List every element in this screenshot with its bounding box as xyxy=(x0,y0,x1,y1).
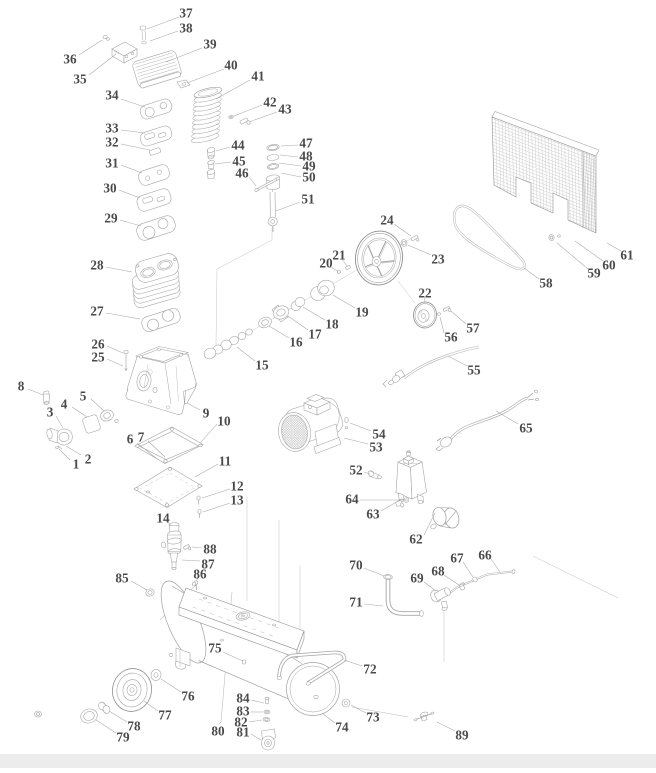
svg-text:3: 3 xyxy=(47,405,54,420)
svg-text:15: 15 xyxy=(255,358,269,373)
svg-text:13: 13 xyxy=(230,493,244,508)
svg-text:19: 19 xyxy=(355,305,369,320)
svg-text:67: 67 xyxy=(450,551,464,566)
svg-text:80: 80 xyxy=(211,724,225,739)
svg-text:38: 38 xyxy=(179,21,193,36)
svg-text:52: 52 xyxy=(349,463,363,478)
svg-text:5: 5 xyxy=(80,389,87,404)
svg-text:4: 4 xyxy=(61,397,68,412)
svg-text:31: 31 xyxy=(105,156,118,171)
svg-text:40: 40 xyxy=(224,58,238,73)
svg-text:75: 75 xyxy=(208,641,222,656)
svg-text:62: 62 xyxy=(409,532,423,547)
svg-text:46: 46 xyxy=(235,166,249,181)
svg-text:30: 30 xyxy=(103,181,117,196)
svg-text:76: 76 xyxy=(181,689,195,704)
svg-text:88: 88 xyxy=(203,542,217,557)
svg-text:71: 71 xyxy=(349,595,362,610)
svg-text:2: 2 xyxy=(85,452,92,467)
svg-text:56: 56 xyxy=(444,330,458,345)
svg-text:33: 33 xyxy=(105,121,119,136)
svg-text:55: 55 xyxy=(467,363,481,378)
svg-text:81: 81 xyxy=(236,725,249,740)
svg-text:66: 66 xyxy=(478,548,492,563)
svg-text:77: 77 xyxy=(158,708,172,723)
svg-text:59: 59 xyxy=(587,266,601,281)
svg-text:8: 8 xyxy=(18,379,25,394)
svg-text:28: 28 xyxy=(90,258,104,273)
svg-text:23: 23 xyxy=(431,252,445,267)
svg-text:51: 51 xyxy=(301,192,314,207)
svg-text:37: 37 xyxy=(179,6,193,21)
svg-text:22: 22 xyxy=(418,286,432,301)
svg-text:50: 50 xyxy=(302,170,316,185)
svg-text:43: 43 xyxy=(278,102,292,117)
svg-text:41: 41 xyxy=(251,69,264,84)
svg-text:68: 68 xyxy=(431,564,445,579)
svg-text:57: 57 xyxy=(466,321,480,336)
svg-text:18: 18 xyxy=(325,317,339,332)
svg-text:12: 12 xyxy=(230,479,244,494)
svg-text:63: 63 xyxy=(366,507,380,522)
svg-text:20: 20 xyxy=(319,256,333,271)
svg-text:39: 39 xyxy=(203,37,217,52)
svg-text:44: 44 xyxy=(231,138,245,153)
svg-text:60: 60 xyxy=(602,258,616,273)
svg-text:6: 6 xyxy=(127,432,134,447)
svg-text:1: 1 xyxy=(73,457,80,472)
svg-text:65: 65 xyxy=(519,421,533,436)
svg-text:64: 64 xyxy=(345,492,359,507)
svg-text:79: 79 xyxy=(116,730,130,745)
svg-text:61: 61 xyxy=(620,248,633,263)
svg-text:89: 89 xyxy=(455,728,469,743)
svg-text:9: 9 xyxy=(203,406,210,421)
svg-text:32: 32 xyxy=(105,135,119,150)
svg-text:42: 42 xyxy=(263,95,277,110)
svg-text:29: 29 xyxy=(104,211,118,226)
svg-text:73: 73 xyxy=(366,710,380,725)
svg-text:85: 85 xyxy=(115,571,129,586)
svg-text:14: 14 xyxy=(156,511,170,526)
svg-text:72: 72 xyxy=(363,662,377,677)
svg-text:58: 58 xyxy=(539,276,553,291)
svg-text:24: 24 xyxy=(380,213,394,228)
svg-text:86: 86 xyxy=(193,567,207,582)
svg-text:25: 25 xyxy=(91,350,105,365)
svg-text:27: 27 xyxy=(90,304,104,319)
svg-text:70: 70 xyxy=(349,558,363,573)
svg-text:34: 34 xyxy=(105,88,119,103)
svg-text:10: 10 xyxy=(217,414,231,429)
svg-text:53: 53 xyxy=(369,440,383,455)
svg-text:74: 74 xyxy=(335,720,349,735)
svg-text:69: 69 xyxy=(410,571,424,586)
svg-text:35: 35 xyxy=(73,72,87,87)
svg-text:16: 16 xyxy=(289,335,303,350)
svg-text:7: 7 xyxy=(138,430,145,445)
svg-text:36: 36 xyxy=(63,52,77,67)
svg-text:21: 21 xyxy=(332,248,345,263)
svg-text:17: 17 xyxy=(308,327,322,342)
svg-text:11: 11 xyxy=(219,454,231,469)
